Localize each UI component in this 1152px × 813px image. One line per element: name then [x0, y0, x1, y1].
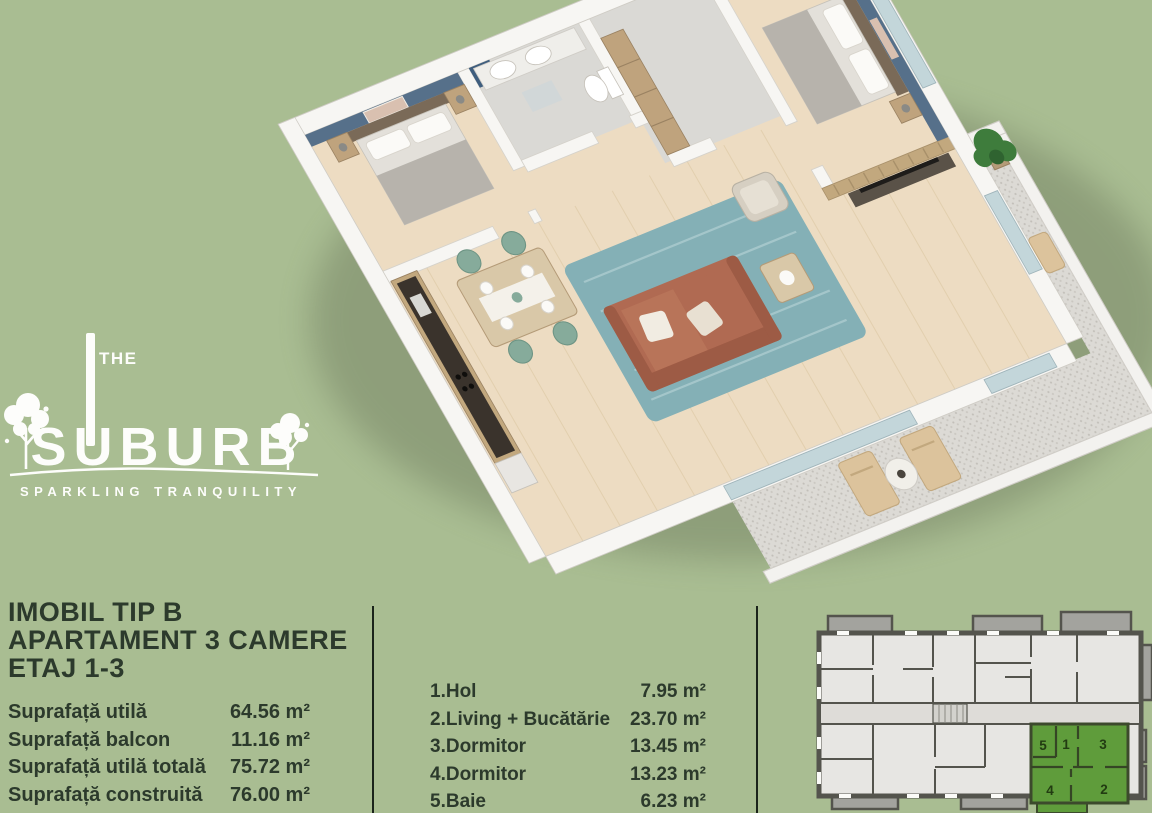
room-label: 4.Dormitor: [430, 761, 526, 789]
brochure-page: THE SUBURB SPARKLING TRANQUILITY IMOBIL …: [0, 0, 1152, 813]
title-line-3: ETAJ 1-3: [8, 654, 364, 682]
room-number-3: 3: [1099, 737, 1107, 752]
area-row: Suprafață utilă 64.56 m²: [8, 699, 310, 727]
vertical-divider: [372, 606, 374, 813]
room-list: 1.Hol 7.95 m² 2.Living + Bucătărie 23.70…: [430, 678, 706, 813]
area-label: Suprafață utilă: [8, 699, 147, 727]
area-row: Suprafață utilă totală 75.72 m²: [8, 754, 310, 782]
apartment-info: IMOBIL TIP B APARTAMENT 3 CAMERE ETAJ 1-…: [8, 598, 364, 809]
room-label: 2.Living + Bucătărie: [430, 706, 610, 734]
vertical-divider: [756, 606, 758, 813]
room-number-4: 4: [1046, 783, 1054, 798]
room-label: 3.Dormitor: [430, 733, 526, 761]
room-row: 3.Dormitor 13.45 m²: [430, 733, 706, 761]
logo-tagline: SPARKLING TRANQUILITY: [20, 484, 302, 499]
room-number-2: 2: [1100, 782, 1108, 797]
room-label: 1.Hol: [430, 678, 476, 706]
title-line-2: APARTAMENT 3 CAMERE: [8, 626, 364, 654]
room-row: 2.Living + Bucătărie 23.70 m²: [430, 706, 706, 734]
area-row: Suprafață balcon 11.16 m²: [8, 727, 310, 755]
room-row: 1.Hol 7.95 m²: [430, 678, 706, 706]
title-line-1: IMOBIL TIP B: [8, 598, 364, 626]
area-row: Suprafață construită 76.00 m²: [8, 782, 310, 810]
room-row: 4.Dormitor 13.23 m²: [430, 761, 706, 789]
room-value: 6.23 m²: [641, 788, 706, 813]
area-value: 11.16 m²: [231, 727, 310, 755]
area-value: 75.72 m²: [230, 754, 310, 782]
logo-the: THE: [99, 349, 138, 368]
room-number-1: 1: [1062, 737, 1070, 752]
building-floor-schematic: 5 1 3 4 2: [815, 607, 1152, 813]
apartment-3d-floorplan: [270, 0, 1152, 632]
area-label: Suprafață construită: [8, 782, 202, 810]
suburb-logo: THE SUBURB SPARKLING TRANQUILITY: [0, 328, 330, 523]
room-value: 23.70 m²: [630, 706, 706, 734]
corridor: [819, 703, 1141, 724]
area-value: 64.56 m²: [230, 699, 310, 727]
area-label: Suprafață utilă totală: [8, 754, 206, 782]
highlighted-unit: 5 1 3 4 2: [1031, 724, 1128, 813]
area-table: Suprafață utilă 64.56 m² Suprafață balco…: [8, 699, 364, 809]
room-row: 5.Baie 6.23 m²: [430, 788, 706, 813]
room-value: 13.45 m²: [630, 733, 706, 761]
area-value: 76.00 m²: [230, 782, 310, 810]
room-value: 7.95 m²: [641, 678, 706, 706]
room-value: 13.23 m²: [630, 761, 706, 789]
area-label: Suprafață balcon: [8, 727, 170, 755]
room-number-5: 5: [1039, 738, 1047, 753]
room-label: 5.Baie: [430, 788, 486, 813]
